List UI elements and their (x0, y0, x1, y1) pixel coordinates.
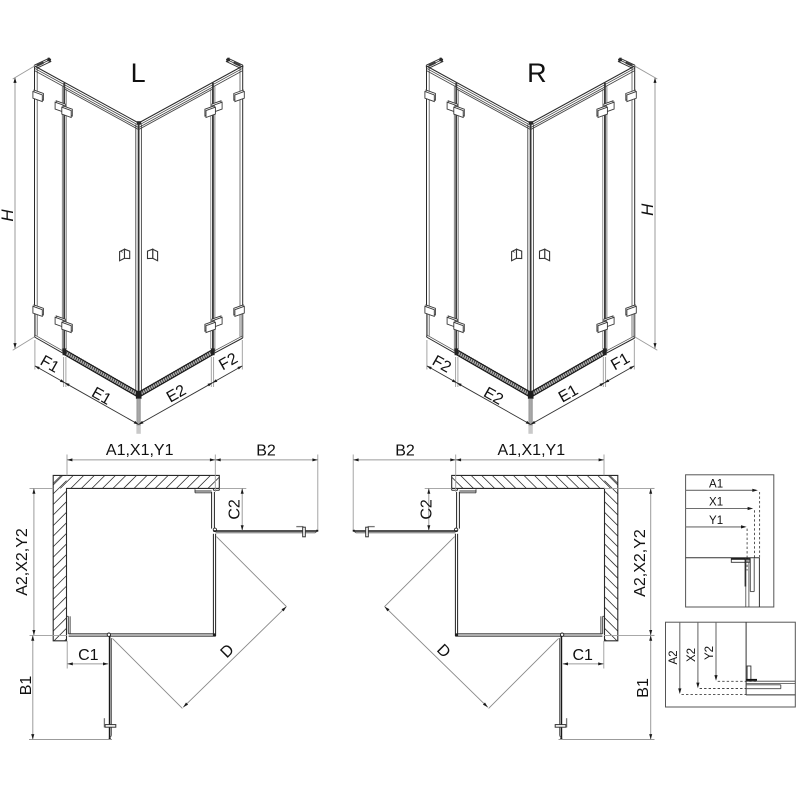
svg-text:X1: X1 (709, 497, 723, 509)
svg-text:H: H (638, 203, 657, 216)
svg-text:A2: A2 (668, 650, 680, 664)
svg-text:X2: X2 (686, 648, 698, 662)
svg-text:B2: B2 (395, 443, 415, 460)
svg-text:H: H (0, 209, 17, 222)
svg-text:A2,X2,Y2: A2,X2,Y2 (632, 529, 649, 597)
svg-text:B1: B1 (635, 678, 652, 698)
svg-text:Y2: Y2 (704, 646, 716, 660)
svg-text:B1: B1 (18, 676, 35, 696)
svg-text:C2: C2 (419, 499, 436, 520)
svg-text:C1: C1 (572, 647, 593, 664)
svg-text:A1: A1 (709, 478, 723, 490)
svg-text:A1,X1,Y1: A1,X1,Y1 (106, 442, 174, 459)
svg-text:Y1: Y1 (709, 515, 723, 527)
svg-text:A1,X1,Y1: A1,X1,Y1 (497, 442, 565, 459)
svg-text:L: L (131, 58, 146, 88)
svg-text:B2: B2 (256, 443, 276, 460)
svg-text:C1: C1 (78, 647, 99, 664)
svg-text:A2,X2,Y2: A2,X2,Y2 (14, 528, 31, 596)
svg-text:R: R (527, 58, 547, 88)
svg-text:C2: C2 (226, 499, 243, 520)
